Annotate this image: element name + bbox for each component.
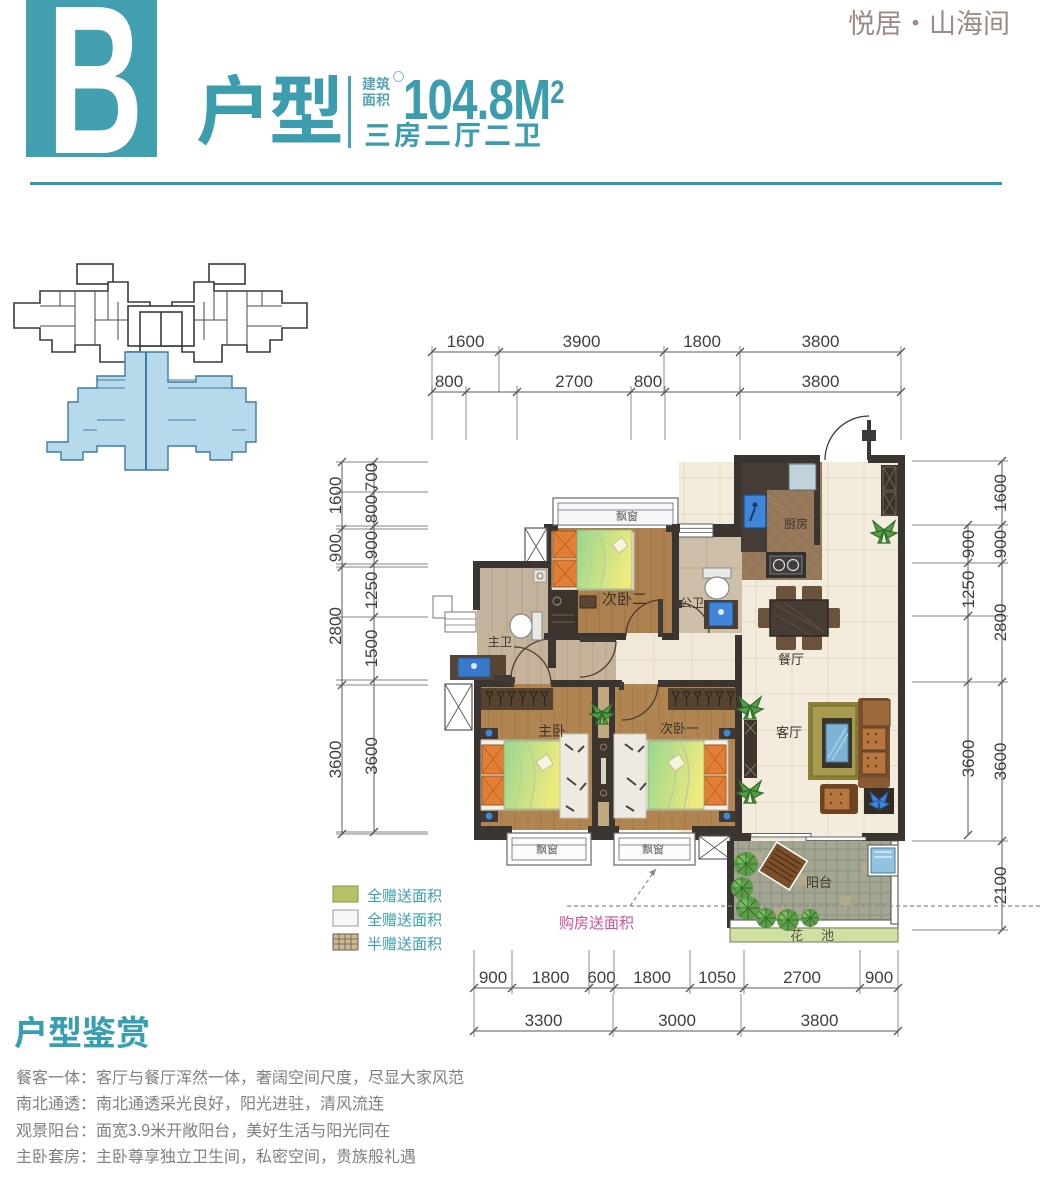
svg-text:全赠送面积: 全赠送面积 [367,909,442,930]
svg-text:1600: 1600 [991,474,1010,512]
svg-text:2800: 2800 [991,604,1010,642]
svg-text:3600: 3600 [362,737,381,775]
svg-text:1250: 1250 [959,571,978,609]
svg-text:1800: 1800 [633,968,671,987]
svg-text:客厅: 客厅 [776,722,802,741]
svg-text:1800: 1800 [532,968,570,987]
svg-text:3600: 3600 [991,743,1010,781]
svg-text:全赠送面积: 全赠送面积 [367,885,442,906]
svg-text:2700: 2700 [555,372,593,391]
svg-text:700: 700 [362,463,381,491]
svg-text:公卫: 公卫 [680,594,704,611]
svg-text:900: 900 [479,968,507,987]
svg-text:900: 900 [959,530,978,558]
svg-text:900: 900 [991,530,1010,558]
svg-text:主卧: 主卧 [538,721,566,741]
svg-text:800: 800 [362,495,381,523]
svg-text:1500: 1500 [362,630,381,668]
svg-text:购房送面积: 购房送面积 [559,912,634,933]
svg-text:3900: 3900 [563,332,601,351]
svg-text:飘窗: 飘窗 [536,841,558,857]
svg-text:900: 900 [326,534,345,562]
svg-text:1600: 1600 [447,332,485,351]
svg-text:厨房: 厨房 [784,515,808,532]
svg-text:3600: 3600 [326,741,345,779]
svg-text:3300: 3300 [525,1011,563,1030]
svg-text:1250: 1250 [362,572,381,610]
svg-text:900: 900 [865,968,893,987]
svg-text:1600: 1600 [326,477,345,515]
svg-text:半赠送面积: 半赠送面积 [367,933,442,954]
svg-text:600: 600 [587,968,615,987]
svg-text:3600: 3600 [959,740,978,778]
svg-text:3800: 3800 [801,1011,839,1030]
svg-text:800: 800 [634,372,662,391]
svg-text:次卧一: 次卧一 [660,718,699,737]
svg-text:800: 800 [435,372,463,391]
svg-text:飘窗: 飘窗 [616,508,638,524]
svg-text:3800: 3800 [802,372,840,391]
svg-text:次卧二: 次卧二 [602,588,647,609]
svg-text:3800: 3800 [802,332,840,351]
svg-text:3000: 3000 [658,1011,696,1030]
svg-text:2800: 2800 [326,607,345,645]
svg-text:1800: 1800 [683,332,721,351]
svg-text:2100: 2100 [991,867,1010,905]
svg-text:2700: 2700 [783,968,821,987]
svg-text:主卫: 主卫 [488,633,512,650]
svg-text:餐厅: 餐厅 [778,649,804,668]
svg-text:飘窗: 飘窗 [642,841,664,857]
svg-text:花池: 花池 [790,925,852,944]
svg-text:阳台: 阳台 [806,872,832,891]
svg-text:1050: 1050 [698,968,736,987]
svg-text:900: 900 [362,531,381,559]
